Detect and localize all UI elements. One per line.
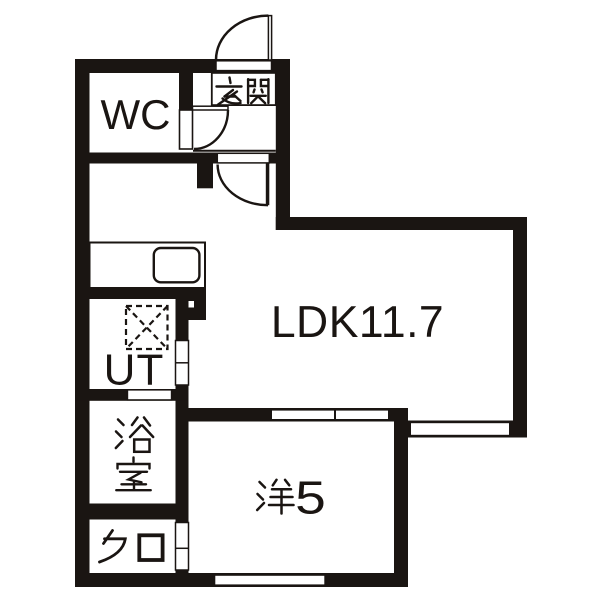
- svg-text:WC: WC: [101, 91, 171, 138]
- svg-text:5: 5: [295, 472, 326, 524]
- svg-text:LDK11.7: LDK11.7: [271, 298, 444, 347]
- svg-text:UT: UT: [104, 346, 165, 395]
